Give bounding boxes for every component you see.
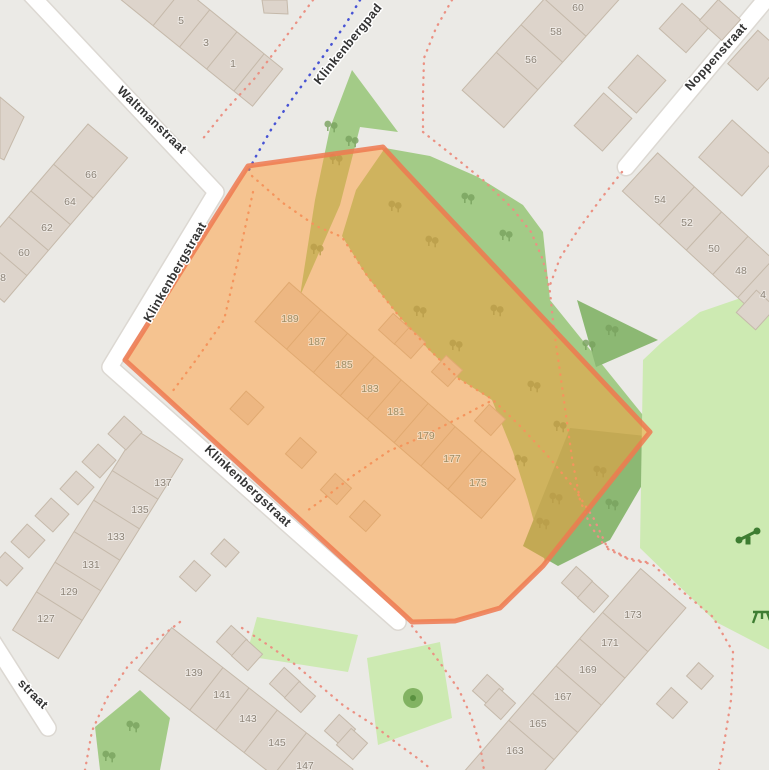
house-number: 64 — [64, 196, 76, 208]
house-number: 50 — [708, 243, 720, 255]
house-number: 179 — [417, 430, 435, 442]
house-number: 129 — [60, 586, 78, 598]
house-number: 4 — [760, 289, 766, 301]
map-canvas[interactable]: WaltmanstraatKlinkenbergstraatKlinkenber… — [0, 0, 769, 770]
house-number: 1 — [230, 58, 236, 70]
house-number: 54 — [654, 194, 666, 206]
house-number: 189 — [281, 313, 299, 325]
house-number: 171 — [601, 637, 619, 649]
house-number: 183 — [361, 383, 379, 395]
house-number: 143 — [239, 713, 257, 725]
house-number: 127 — [37, 613, 55, 625]
house-number: 169 — [579, 664, 597, 676]
house-number: 56 — [525, 54, 537, 66]
house-number: 181 — [387, 406, 405, 418]
house-number: 137 — [154, 477, 172, 489]
house-number: 173 — [624, 609, 642, 621]
house-number: 3 — [203, 37, 209, 49]
house-number: 58 — [550, 26, 562, 38]
house-number: 141 — [213, 689, 231, 701]
house-number: 175 — [469, 477, 487, 489]
house-number: 62 — [41, 222, 53, 234]
tree-circle-icon — [403, 688, 423, 708]
house-number: 163 — [506, 745, 524, 757]
house-number: 139 — [185, 667, 203, 679]
house-number: 52 — [681, 217, 693, 229]
house-number: 187 — [308, 336, 326, 348]
house-number: 66 — [85, 169, 97, 181]
house-number: 135 — [131, 504, 149, 516]
house-number: 147 — [296, 760, 314, 770]
house-number: 48 — [735, 265, 747, 277]
house-number: 5 — [178, 15, 184, 27]
house-number: 8 — [0, 272, 6, 284]
house-number: 131 — [82, 559, 100, 571]
house-number: 177 — [443, 453, 461, 465]
house-number: 167 — [554, 691, 572, 703]
house-number: 165 — [529, 718, 547, 730]
house-number: 133 — [107, 531, 125, 543]
house-number: 60 — [572, 2, 584, 14]
house-number: 145 — [268, 737, 286, 749]
house-number: 60 — [18, 247, 30, 259]
building — [262, 0, 288, 14]
house-number: 185 — [335, 359, 353, 371]
